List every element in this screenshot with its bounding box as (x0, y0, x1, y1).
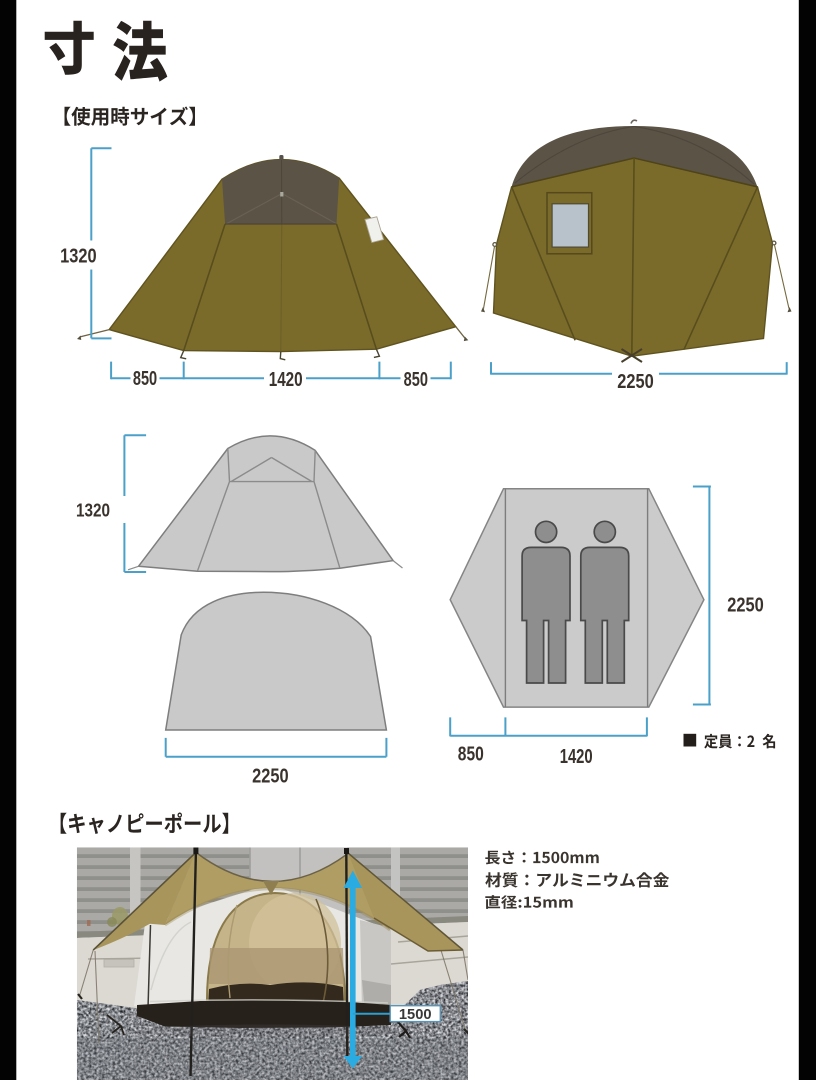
svg-text:1320: 1320 (76, 499, 110, 520)
svg-text:1320: 1320 (60, 244, 97, 267)
svg-text:850: 850 (458, 742, 484, 765)
svg-text:2250: 2250 (727, 593, 764, 616)
svg-text:1500: 1500 (399, 1007, 432, 1023)
svg-text:1420: 1420 (269, 368, 303, 391)
svg-text:850: 850 (404, 368, 428, 391)
svg-text:2250: 2250 (617, 370, 654, 393)
svg-text:1420: 1420 (560, 745, 593, 768)
svg-text:850: 850 (133, 367, 157, 390)
svg-text:2250: 2250 (252, 765, 289, 788)
